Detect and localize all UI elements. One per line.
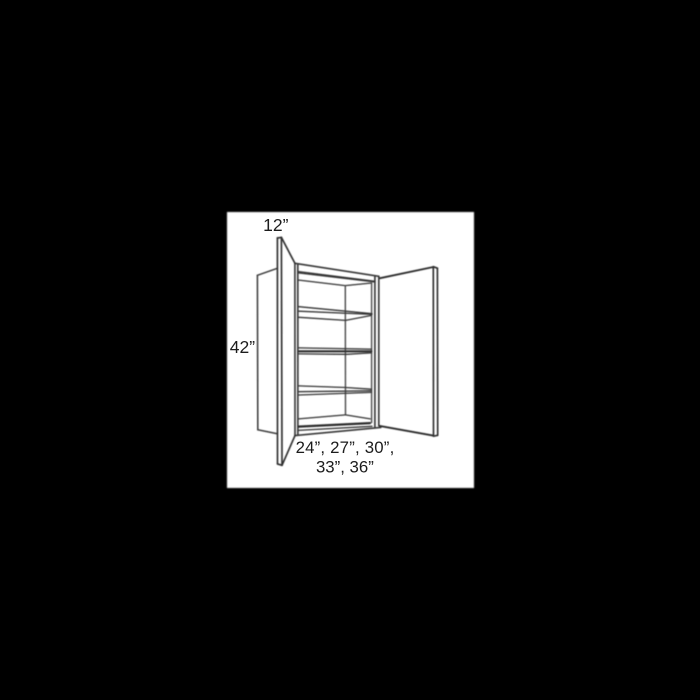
svg-text:33”, 36”: 33”, 36” bbox=[316, 458, 374, 477]
svg-text:42”: 42” bbox=[230, 337, 255, 357]
svg-text:24”, 27”, 30”,: 24”, 27”, 30”, bbox=[296, 438, 395, 457]
svg-text:12”: 12” bbox=[263, 215, 288, 235]
